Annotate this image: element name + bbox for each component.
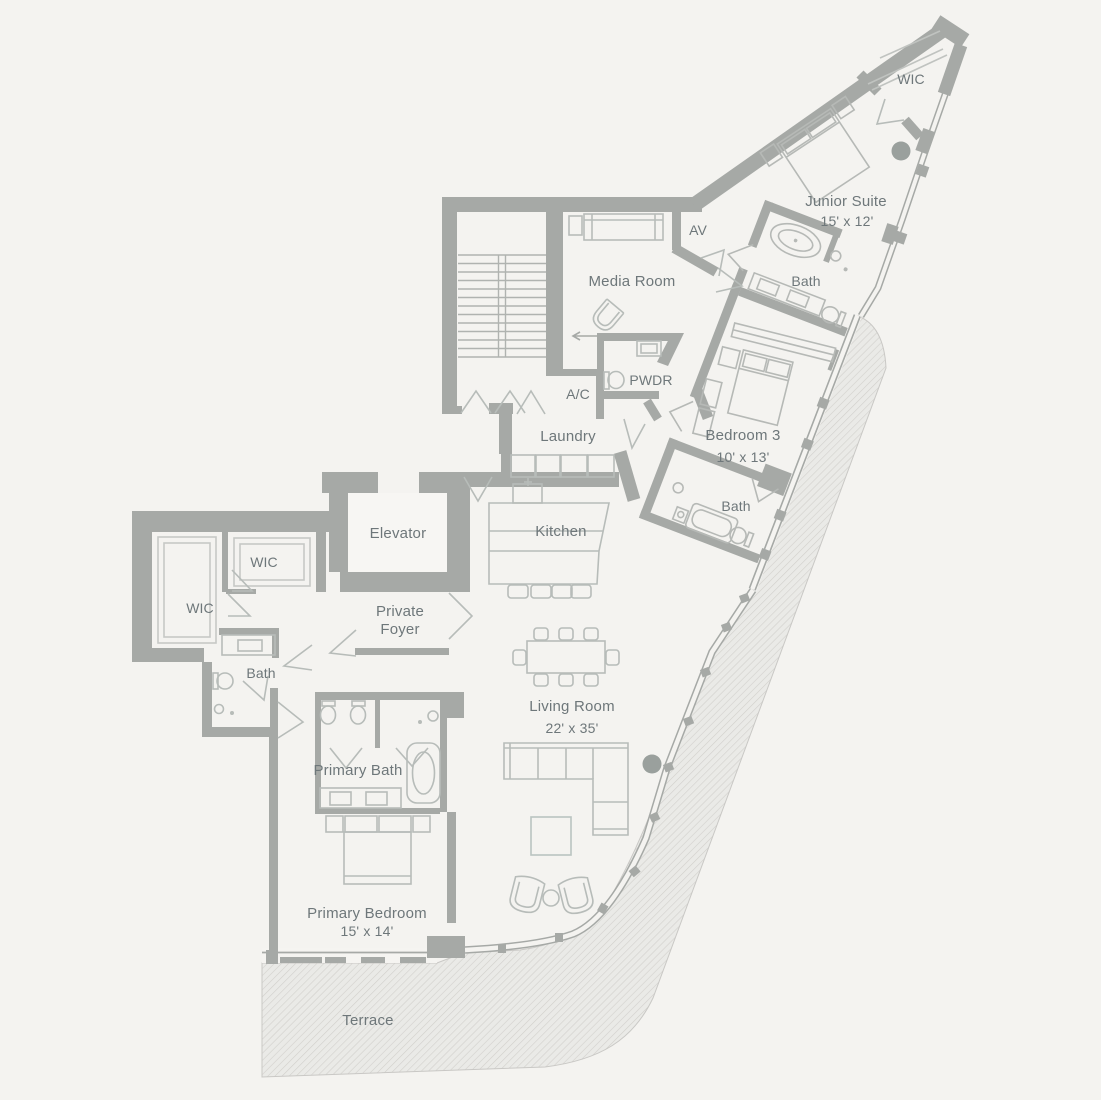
svg-text:Bath: Bath <box>246 665 275 681</box>
svg-text:A/C: A/C <box>566 386 590 402</box>
svg-text:PWDR: PWDR <box>629 372 672 388</box>
svg-text:15' x 14': 15' x 14' <box>340 923 393 939</box>
svg-text:Primary Bedroom: Primary Bedroom <box>307 905 427 922</box>
svg-text:Living Room: Living Room <box>529 698 615 715</box>
svg-text:22' x 35': 22' x 35' <box>545 720 598 736</box>
svg-text:Bath: Bath <box>721 498 750 514</box>
svg-text:Laundry: Laundry <box>540 428 596 445</box>
svg-text:Kitchen: Kitchen <box>535 523 586 540</box>
svg-text:WIC: WIC <box>250 554 278 570</box>
svg-text:10' x 13': 10' x 13' <box>716 449 769 465</box>
svg-text:15' x 12': 15' x 12' <box>820 213 873 229</box>
svg-text:Elevator: Elevator <box>370 525 427 542</box>
svg-text:WIC: WIC <box>897 71 925 87</box>
svg-text:Media Room: Media Room <box>588 273 675 290</box>
svg-text:AV: AV <box>689 222 707 238</box>
svg-text:Terrace: Terrace <box>342 1012 393 1029</box>
svg-text:Private: Private <box>376 603 424 620</box>
svg-text:Primary Bath: Primary Bath <box>313 762 402 779</box>
svg-text:Junior Suite: Junior Suite <box>805 193 887 210</box>
svg-text:Bath: Bath <box>791 273 820 289</box>
svg-text:WIC: WIC <box>186 600 214 616</box>
svg-text:Bedroom 3: Bedroom 3 <box>705 427 780 444</box>
svg-text:Foyer: Foyer <box>380 621 419 638</box>
